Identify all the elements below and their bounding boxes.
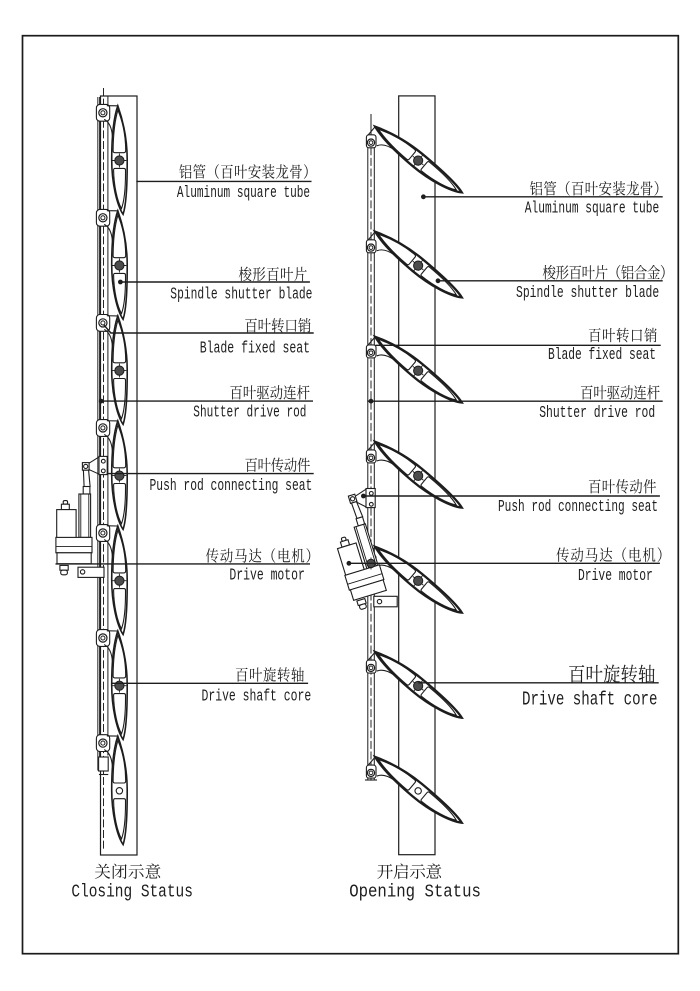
svg-text:Push rod connecting seat: Push rod connecting seat [498,497,658,516]
svg-text:Blade fixed seat: Blade fixed seat [548,345,656,364]
svg-text:Spindle shutter blade: Spindle shutter blade [516,283,659,302]
svg-text:Shutter drive rod: Shutter drive rod [193,402,306,421]
svg-text:Drive motor: Drive motor [578,566,653,585]
svg-text:Drive shaft core: Drive shaft core [522,688,658,710]
svg-text:Closing Status: Closing Status [71,881,192,903]
svg-text:Blade fixed seat: Blade fixed seat [200,338,310,357]
svg-text:Drive motor: Drive motor [229,566,305,585]
svg-text:Push rod connecting seat: Push rod connecting seat [150,476,313,495]
svg-text:Opening Status: Opening Status [349,881,481,903]
svg-text:Drive shaft core: Drive shaft core [202,687,312,706]
svg-text:Aluminum square tube: Aluminum square tube [177,183,310,202]
svg-text:Shutter drive rod: Shutter drive rod [539,403,655,422]
svg-text:Spindle shutter blade: Spindle shutter blade [170,284,312,303]
svg-text:Aluminum square tube: Aluminum square tube [525,198,659,217]
